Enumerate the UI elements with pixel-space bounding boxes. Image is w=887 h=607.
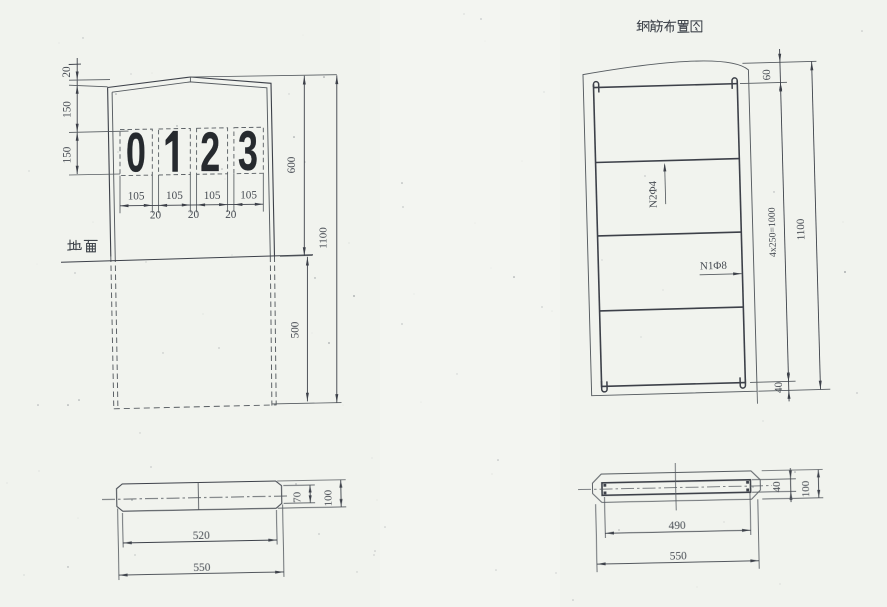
svg-text:550: 550 [193, 562, 211, 574]
svg-text:0: 0 [126, 122, 146, 184]
svg-text:N1Φ8: N1Φ8 [700, 260, 728, 273]
svg-text:600: 600 [286, 156, 298, 173]
svg-text:500: 500 [290, 321, 302, 338]
svg-text:105: 105 [166, 190, 183, 202]
svg-text:20: 20 [61, 66, 73, 78]
svg-text:70: 70 [292, 491, 304, 503]
svg-text:1100: 1100 [317, 227, 329, 249]
svg-text:105: 105 [128, 191, 145, 203]
svg-text:40: 40 [771, 481, 783, 493]
svg-text:100: 100 [322, 489, 334, 506]
svg-text:20: 20 [225, 209, 237, 221]
svg-text:N2Φ4: N2Φ4 [647, 180, 660, 208]
svg-text:550: 550 [670, 550, 688, 562]
svg-text:490: 490 [668, 520, 686, 532]
svg-text:100: 100 [800, 480, 812, 497]
svg-text:2: 2 [200, 121, 220, 183]
svg-text:3: 3 [238, 120, 258, 182]
svg-text:40: 40 [773, 381, 785, 393]
svg-text:4x250=1000: 4x250=1000 [767, 207, 779, 257]
svg-text:105: 105 [204, 190, 221, 202]
svg-text:20: 20 [188, 209, 200, 221]
svg-text:105: 105 [240, 189, 257, 201]
svg-text:60: 60 [761, 69, 773, 81]
svg-text:150: 150 [62, 101, 74, 118]
svg-text:520: 520 [193, 530, 211, 542]
svg-text:150: 150 [62, 146, 74, 163]
svg-text:20: 20 [150, 210, 162, 222]
svg-text:1100: 1100 [795, 218, 808, 240]
